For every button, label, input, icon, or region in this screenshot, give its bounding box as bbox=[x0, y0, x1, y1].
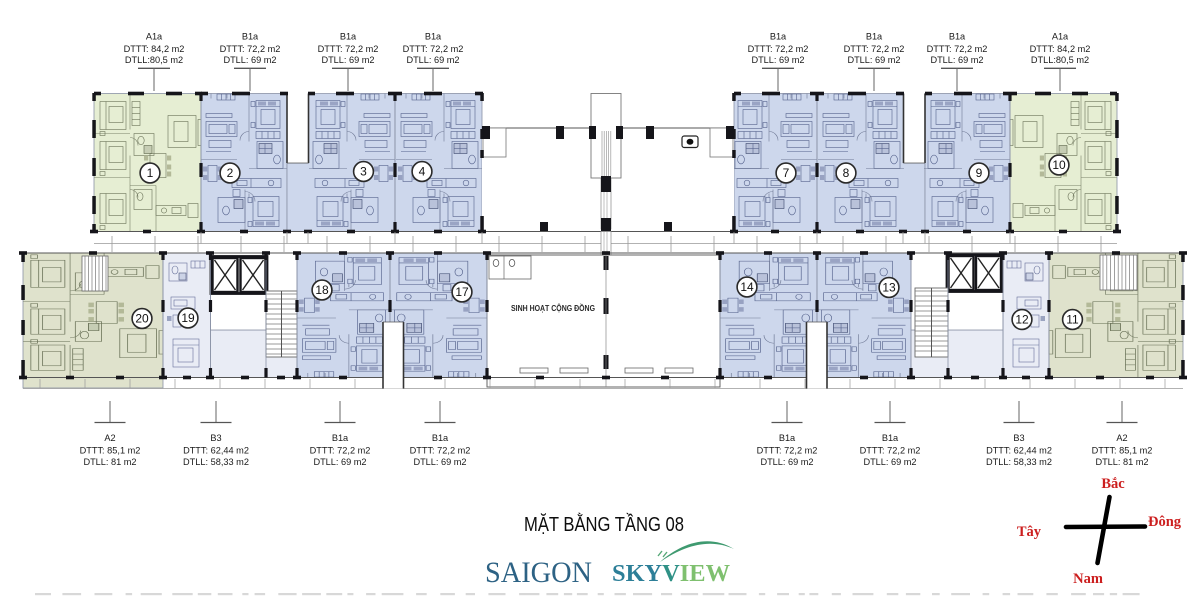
svg-text:SKYVIEW: SKYVIEW bbox=[612, 561, 730, 587]
svg-text:12: 12 bbox=[1015, 313, 1029, 327]
svg-text:DTTT: 72,2 m2: DTTT: 72,2 m2 bbox=[310, 446, 371, 456]
svg-text:Đông: Đông bbox=[1148, 514, 1182, 530]
svg-text:Bắc: Bắc bbox=[1101, 476, 1125, 492]
svg-text:DTTT: 85,1 m2: DTTT: 85,1 m2 bbox=[1092, 446, 1153, 456]
svg-text:SAIGON: SAIGON bbox=[485, 556, 592, 589]
svg-text:DTLL: 58,33 m2: DTLL: 58,33 m2 bbox=[183, 457, 249, 467]
svg-text:DTLL: 69 m2: DTLL: 69 m2 bbox=[313, 457, 366, 467]
svg-text:DTLL: 69 m2: DTLL: 69 m2 bbox=[760, 457, 813, 467]
svg-text:DTLL: 58,33 m2: DTLL: 58,33 m2 bbox=[986, 457, 1052, 467]
svg-text:DTLL: 69 m2: DTLL: 69 m2 bbox=[930, 55, 983, 65]
svg-text:7: 7 bbox=[783, 166, 790, 180]
svg-text:18: 18 bbox=[315, 283, 329, 297]
svg-text:3: 3 bbox=[360, 165, 367, 179]
svg-text:DTLL: 81 m2: DTLL: 81 m2 bbox=[1095, 457, 1148, 467]
svg-text:DTTT: 62,44 m2: DTTT: 62,44 m2 bbox=[183, 446, 249, 456]
svg-text:SINH HOẠT CỘNG ĐỒNG: SINH HOẠT CỘNG ĐỒNG bbox=[511, 302, 595, 313]
svg-text:B1a: B1a bbox=[340, 32, 357, 42]
svg-text:DTTT: 72,2 m2: DTTT: 72,2 m2 bbox=[927, 44, 988, 54]
svg-text:DTTT: 62,44 m2: DTTT: 62,44 m2 bbox=[986, 446, 1052, 456]
svg-text:11: 11 bbox=[1066, 313, 1079, 327]
svg-text:DTTT: 72,2 m2: DTTT: 72,2 m2 bbox=[844, 44, 905, 54]
svg-text:DTTT: 84,2 m2: DTTT: 84,2 m2 bbox=[1030, 44, 1091, 54]
svg-text:A1a: A1a bbox=[1052, 32, 1069, 42]
svg-text:DTLL:80,5 m2: DTLL:80,5 m2 bbox=[1031, 55, 1089, 65]
svg-text:DTTT: 72,2 m2: DTTT: 72,2 m2 bbox=[410, 446, 471, 456]
svg-text:17: 17 bbox=[455, 285, 469, 299]
svg-text:DTLL: 69 m2: DTLL: 69 m2 bbox=[223, 55, 276, 65]
svg-text:14: 14 bbox=[740, 280, 754, 294]
svg-text:DTTT: 72,2 m2: DTTT: 72,2 m2 bbox=[757, 446, 818, 456]
svg-text:B1a: B1a bbox=[770, 32, 787, 42]
svg-text:B3: B3 bbox=[1013, 433, 1024, 443]
svg-text:2: 2 bbox=[227, 166, 234, 180]
svg-text:MẶT BẰNG TẦNG 08: MẶT BẰNG TẦNG 08 bbox=[524, 512, 684, 536]
svg-text:19: 19 bbox=[181, 311, 195, 325]
svg-text:B1a: B1a bbox=[432, 433, 449, 443]
svg-text:DTTT: 85,1 m2: DTTT: 85,1 m2 bbox=[80, 446, 141, 456]
svg-text:10: 10 bbox=[1052, 158, 1066, 172]
svg-text:DTLL:80,5 m2: DTLL:80,5 m2 bbox=[125, 55, 183, 65]
svg-text:DTLL: 69 m2: DTLL: 69 m2 bbox=[321, 55, 374, 65]
svg-text:DTLL: 81 m2: DTLL: 81 m2 bbox=[83, 457, 136, 467]
svg-text:Tây: Tây bbox=[1017, 524, 1042, 540]
svg-text:DTTT: 84,2 m2: DTTT: 84,2 m2 bbox=[124, 44, 185, 54]
svg-text:DTLL: 69 m2: DTLL: 69 m2 bbox=[406, 55, 459, 65]
svg-text:B1a: B1a bbox=[242, 32, 259, 42]
svg-text:B1a: B1a bbox=[779, 433, 796, 443]
svg-text:DTTT: 72,2 m2: DTTT: 72,2 m2 bbox=[403, 44, 464, 54]
svg-text:20: 20 bbox=[135, 312, 149, 326]
svg-text:DTLL: 69 m2: DTLL: 69 m2 bbox=[413, 457, 466, 467]
svg-text:B1a: B1a bbox=[882, 433, 899, 443]
svg-text:A2: A2 bbox=[1116, 433, 1127, 443]
svg-text:B1a: B1a bbox=[866, 32, 883, 42]
svg-text:4: 4 bbox=[419, 165, 426, 179]
svg-text:DTLL: 69 m2: DTLL: 69 m2 bbox=[847, 55, 900, 65]
svg-text:B1a: B1a bbox=[949, 32, 966, 42]
svg-text:DTLL: 69 m2: DTLL: 69 m2 bbox=[863, 457, 916, 467]
svg-text:Nam: Nam bbox=[1073, 571, 1103, 587]
svg-text:13: 13 bbox=[882, 281, 896, 295]
svg-text:8: 8 bbox=[843, 166, 850, 180]
svg-text:DTTT: 72,2 m2: DTTT: 72,2 m2 bbox=[318, 44, 379, 54]
svg-text:B1a: B1a bbox=[425, 32, 442, 42]
svg-text:B3: B3 bbox=[210, 433, 221, 443]
svg-text:DTTT: 72,2 m2: DTTT: 72,2 m2 bbox=[860, 446, 921, 456]
svg-text:9: 9 bbox=[976, 166, 983, 180]
svg-text:A1a: A1a bbox=[146, 32, 163, 42]
svg-text:B1a: B1a bbox=[332, 433, 349, 443]
svg-text:DTLL: 69 m2: DTLL: 69 m2 bbox=[751, 55, 804, 65]
svg-text:1: 1 bbox=[147, 166, 154, 180]
svg-text:DTTT: 72,2 m2: DTTT: 72,2 m2 bbox=[748, 44, 809, 54]
svg-text:A2: A2 bbox=[104, 433, 115, 443]
svg-text:DTTT: 72,2 m2: DTTT: 72,2 m2 bbox=[220, 44, 281, 54]
